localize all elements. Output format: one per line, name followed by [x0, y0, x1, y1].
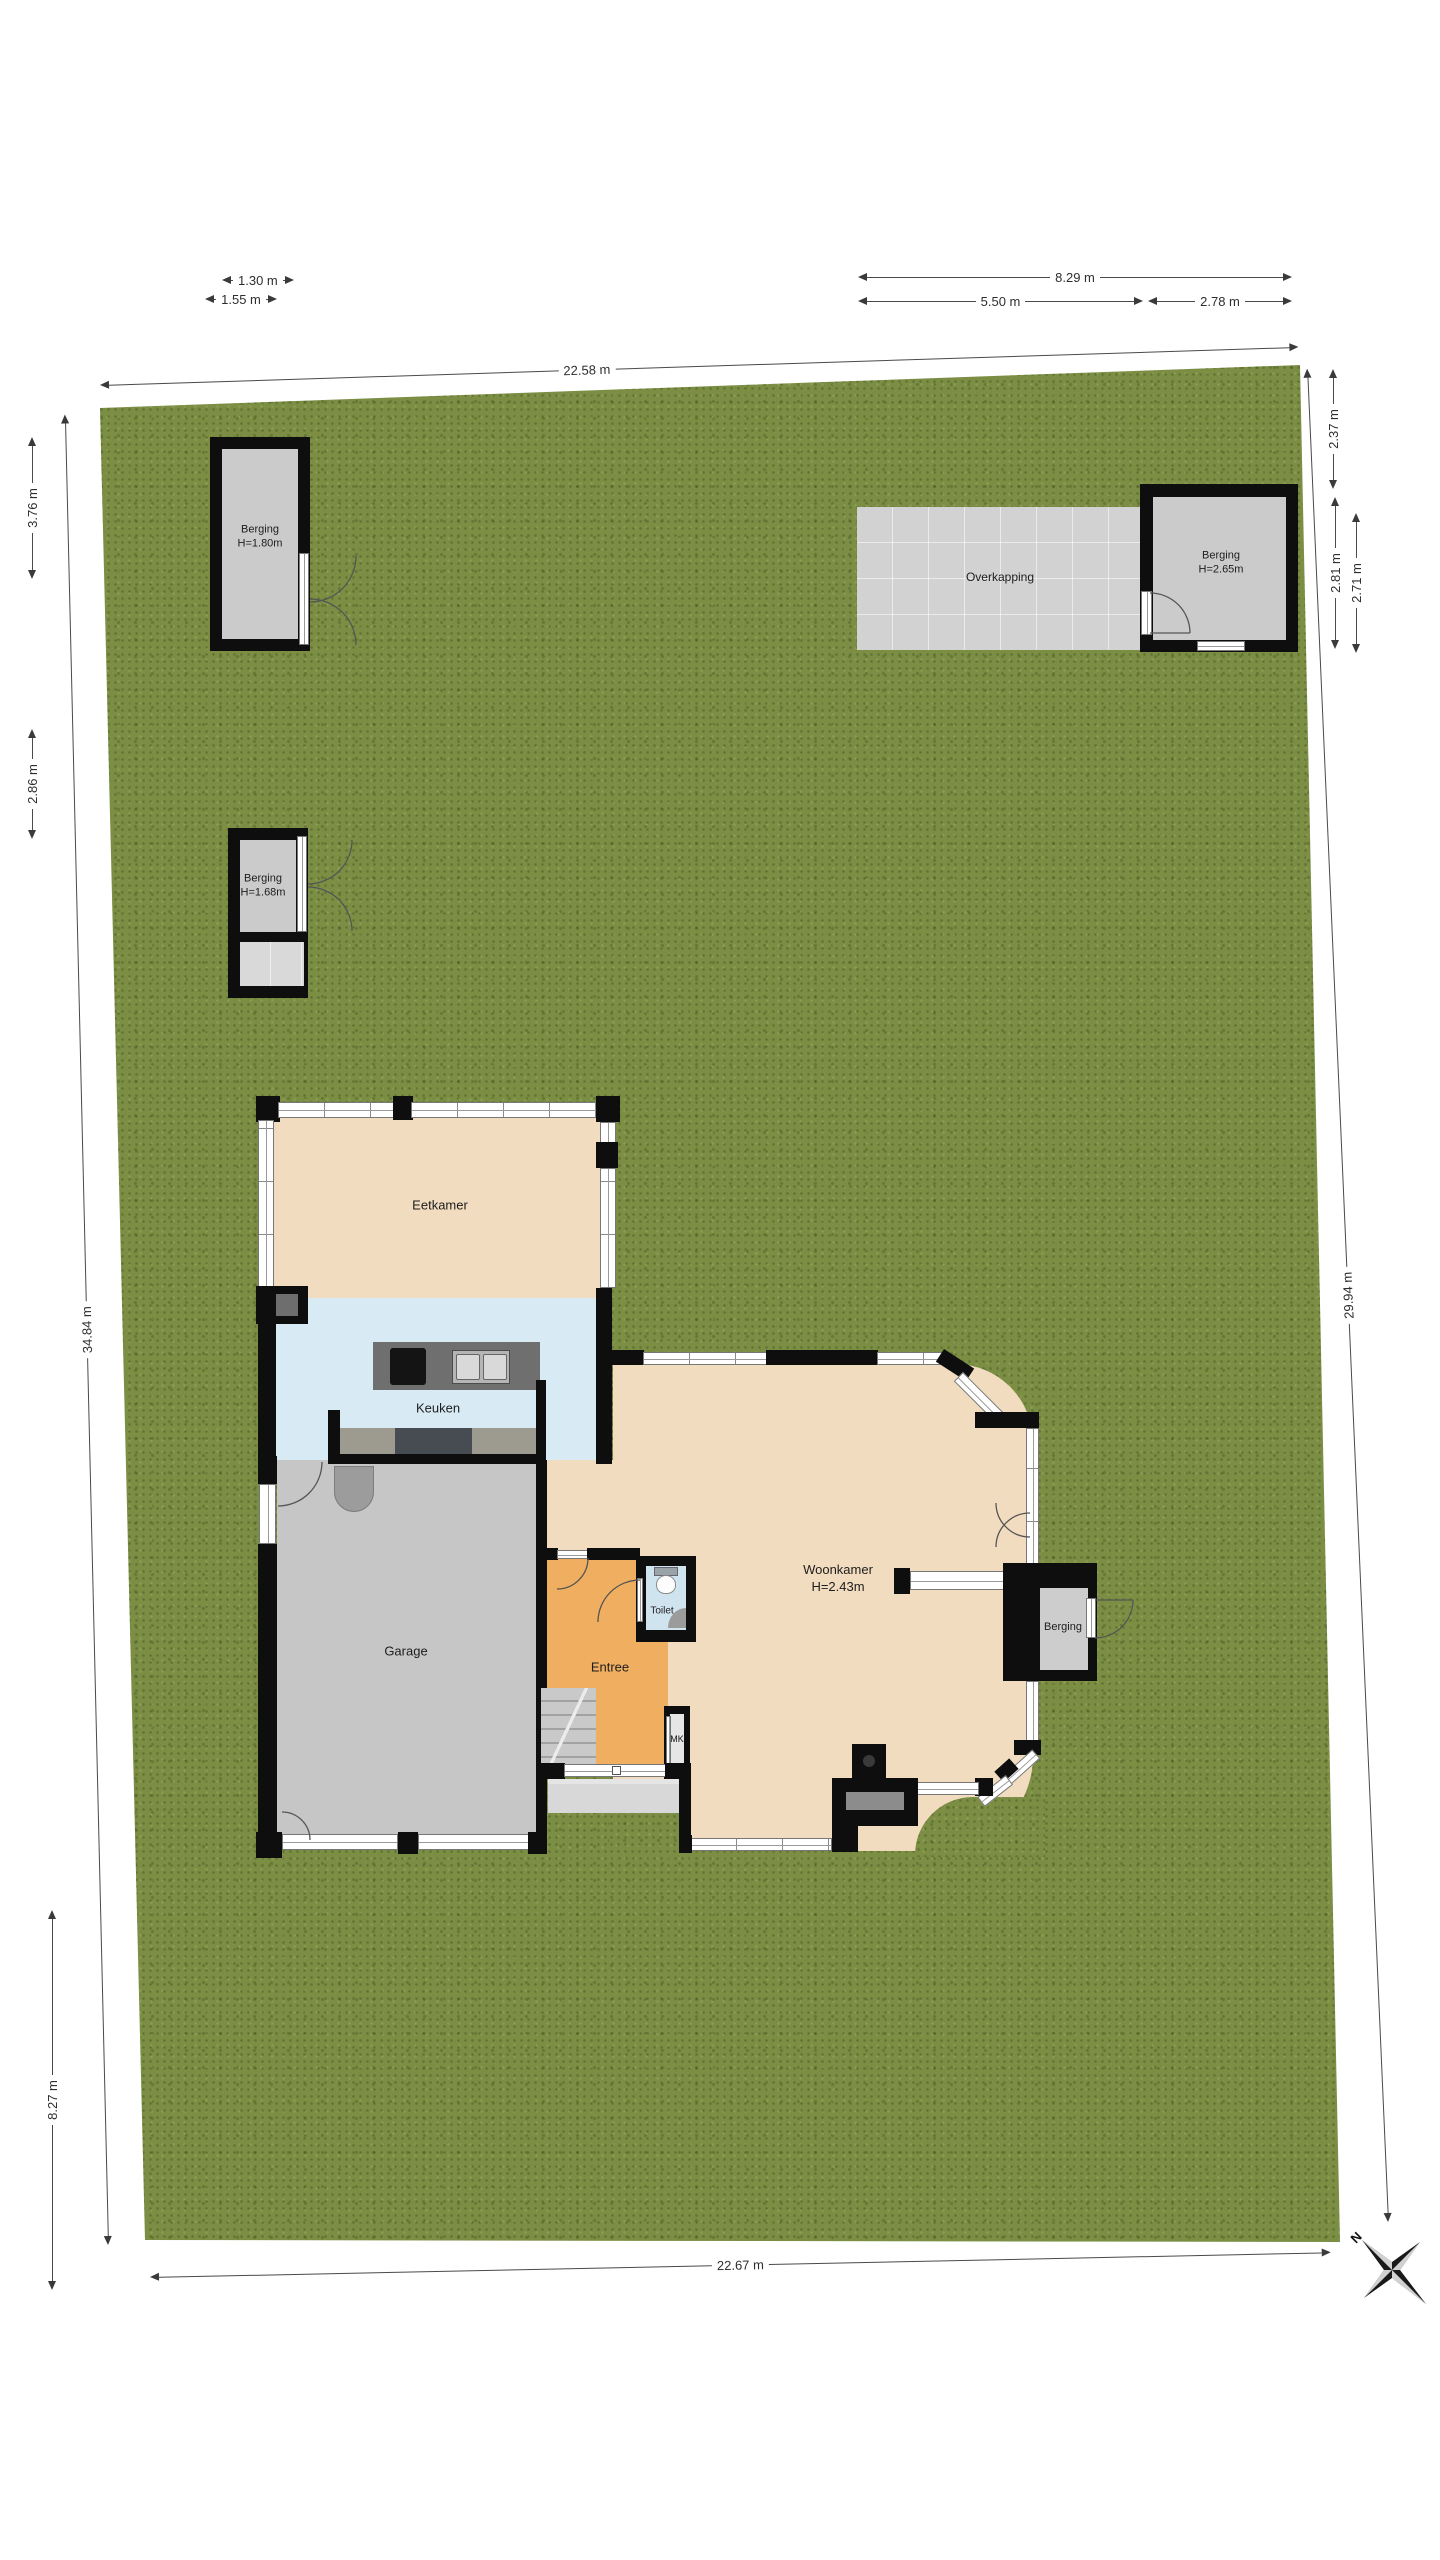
dimension-label: 2.81 m: [1328, 548, 1343, 598]
entree-top-wall-left: [541, 1548, 558, 1560]
storage-mid-left-door-frame: [297, 836, 307, 932]
stairs: [541, 1688, 596, 1765]
dimension-label: 3.76 m: [25, 483, 40, 533]
toilet-bowl: [656, 1575, 676, 1594]
storage-top-left-height: H=1.80m: [238, 537, 283, 551]
living-window-right-upper: [1026, 1428, 1039, 1575]
dimension-2-71-m: 2.71 m: [1349, 513, 1363, 653]
fireplace-inset: [846, 1792, 904, 1810]
garage-corner-post-right: [528, 1832, 547, 1854]
entree-top-wall-right: [587, 1548, 640, 1560]
passage-band: [910, 1571, 1004, 1590]
living-top-wall-left: [596, 1350, 644, 1365]
dimension-label: 2.78 m: [1195, 294, 1245, 309]
kitchen-wall-stub: [328, 1410, 340, 1460]
entree-bottom-wall-left: [541, 1763, 565, 1779]
living-room-nook-floor: [545, 1460, 617, 1560]
dimension-label: 1.55 m: [216, 292, 266, 307]
front-door-knob: [612, 1766, 621, 1775]
cooktop: [390, 1348, 426, 1385]
garage-door-left: [282, 1834, 398, 1850]
attached-storage-door-frame: [1086, 1598, 1096, 1638]
kitchen-left-wall: [258, 1290, 276, 1462]
living-room-height: H=2.43m: [803, 1579, 873, 1596]
garage-corner-post: [256, 1832, 282, 1858]
kitchen-right-stub: [536, 1380, 546, 1464]
garage-left-wall-lower: [258, 1544, 277, 1840]
living-room-label: Woonkamer H=2.43m: [803, 1562, 873, 1596]
living-window-right-lower: [1026, 1681, 1039, 1742]
dimension-label: 2.71 m: [1349, 558, 1364, 608]
wall-segment: [393, 1096, 413, 1120]
garage-label: Garage: [384, 1644, 427, 1661]
dimension-label: 8.27 m: [45, 2075, 60, 2125]
sink-basin-right: [483, 1354, 507, 1380]
garage-left-window: [259, 1484, 276, 1544]
entree-name: Entree: [591, 1660, 629, 1675]
storage-top-right-height: H=2.65m: [1199, 563, 1244, 577]
kitchen-label: Keuken: [416, 1401, 460, 1418]
dimension-label: 34.84 m: [78, 1301, 94, 1358]
dimension-8-29-m: 8.29 m: [858, 270, 1292, 284]
dimension-2-86-m: 2.86 m: [25, 729, 39, 839]
dimension-label: 5.50 m: [976, 294, 1026, 309]
dimension-22-67-m: 22.67 m: [150, 2245, 1331, 2284]
dimension-1-30-m: 1.30 m: [222, 273, 282, 287]
storage-top-left-name: Berging: [238, 523, 283, 537]
meter-closet-name: MK: [670, 1734, 684, 1744]
dining-window-right-upper: [600, 1122, 616, 1144]
dining-room-name: Eetkamer: [412, 1198, 468, 1213]
kitchen-garage-wall: [328, 1454, 545, 1464]
living-window-top-1: [643, 1352, 767, 1365]
storage-mid-left-annex-floor: [240, 942, 304, 986]
dining-room-label: Eetkamer: [412, 1198, 468, 1215]
garage-door-right: [418, 1834, 530, 1850]
kitchen-name: Keuken: [416, 1401, 460, 1416]
storage-top-right-window: [1197, 641, 1245, 651]
fireplace-base: [832, 1824, 858, 1852]
living-corner-post: [975, 1412, 1039, 1428]
living-window-bottom-right: [917, 1782, 979, 1795]
wall-segment: [596, 1142, 618, 1168]
floor-plan-canvas: Berging H=1.80m Overkapping Berging H=2.…: [0, 0, 1440, 2560]
compass-rose: N: [1342, 2218, 1438, 2314]
garage-right-wall: [536, 1460, 547, 1852]
dining-window-right-lower: [600, 1168, 616, 1288]
kitchen-appliance: [395, 1428, 472, 1457]
compass-north-label: N: [1348, 2229, 1365, 2246]
wall-segment: [596, 1288, 612, 1464]
storage-mid-left-label: Berging H=1.68m: [241, 872, 286, 901]
dimension-label: 1.30 m: [233, 273, 283, 288]
living-window-bottom-left: [690, 1838, 832, 1851]
dimension-34-84-m: 34.84 m: [58, 414, 115, 2245]
boiler: [334, 1466, 374, 1512]
dining-window-top-left: [278, 1102, 395, 1118]
canopy-name: Overkapping: [966, 570, 1034, 584]
storage-top-right-label: Berging H=2.65m: [1199, 549, 1244, 578]
passage-post: [894, 1568, 910, 1594]
storage-mid-left-name: Berging: [241, 872, 286, 886]
attached-storage-name: Berging: [1044, 1621, 1082, 1633]
fireplace-flue-cap: [863, 1755, 875, 1767]
living-room-name: Woonkamer: [803, 1562, 873, 1579]
dining-window-left: [258, 1120, 274, 1288]
canopy-label: Overkapping: [966, 570, 1034, 586]
dimension-2-37-m: 2.37 m: [1326, 369, 1340, 489]
storage-top-left-label: Berging H=1.80m: [238, 523, 283, 552]
storage-top-right-name: Berging: [1199, 549, 1244, 563]
dimension-label: 8.29 m: [1050, 270, 1100, 285]
entree-top-door-frame: [557, 1550, 588, 1559]
toilet-label: Toilet: [650, 1605, 673, 1618]
wall-segment: [596, 1096, 620, 1122]
entree-label: Entree: [591, 1660, 629, 1677]
dimension-2-78-m: 2.78 m: [1148, 294, 1292, 308]
sink-basin-left: [456, 1354, 480, 1380]
dimension-label: 2.37 m: [1326, 404, 1341, 454]
compass: N: [1342, 2218, 1438, 2314]
storage-top-right-door-frame: [1141, 591, 1152, 635]
porch: [548, 1779, 680, 1813]
dimension-2-81-m: 2.81 m: [1328, 497, 1342, 649]
dimension-label: 22.67 m: [712, 2257, 769, 2273]
attached-storage-label: Berging: [1044, 1620, 1082, 1634]
dimension-label: 29.94 m: [1339, 1267, 1356, 1325]
wall-segment: [256, 1096, 280, 1122]
dimension-1-55-m: 1.55 m: [205, 292, 277, 306]
toilet-door-frame: [637, 1578, 643, 1622]
dining-window-top-right: [411, 1102, 598, 1118]
living-left-wall-lower: [679, 1763, 691, 1853]
dimension-8-27-m: 8.27 m: [45, 1910, 59, 2290]
dimension-label: 2.86 m: [25, 759, 40, 809]
garage-name: Garage: [384, 1644, 427, 1659]
living-top-wall-mid: [766, 1350, 878, 1365]
toilet-name: Toilet: [650, 1606, 673, 1617]
storage-top-left-door-frame: [299, 553, 309, 645]
storage-mid-left-height: H=1.68m: [241, 886, 286, 900]
dimension-3-76-m: 3.76 m: [25, 437, 39, 579]
dimension-5-50-m: 5.50 m: [858, 294, 1143, 308]
grass-patch-below-porch: [608, 1813, 686, 1855]
meter-closet-label: MK: [670, 1734, 684, 1746]
garage-left-wall-upper: [258, 1456, 277, 1484]
dimension-label: 22.58 m: [558, 361, 615, 378]
garage-door-post: [398, 1832, 418, 1854]
